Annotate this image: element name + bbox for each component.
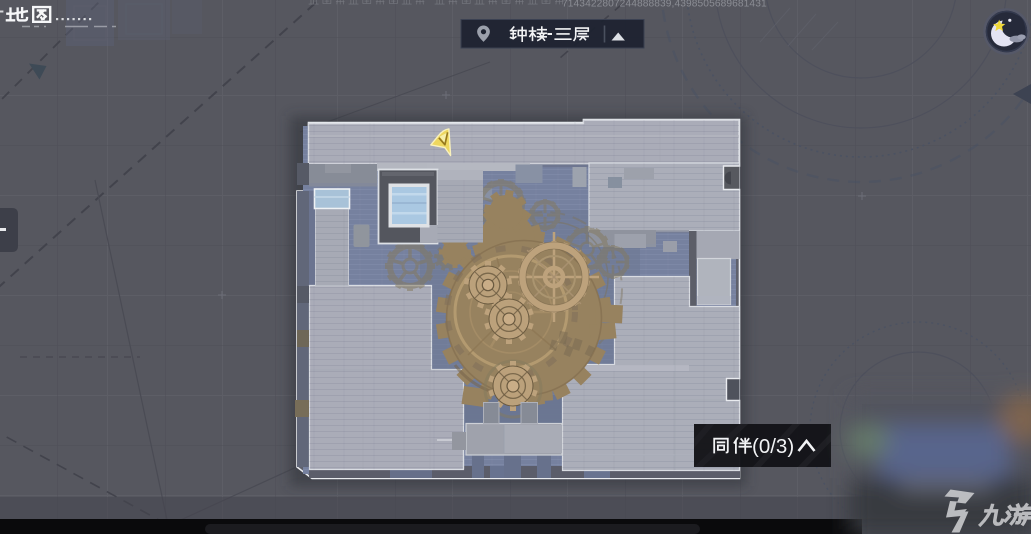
svg-text:(0/3): (0/3) <box>752 435 794 458</box>
svg-text:7143422807244888839,4398505689: 7143422807244888839,4398505689681431 <box>562 0 767 10</box>
